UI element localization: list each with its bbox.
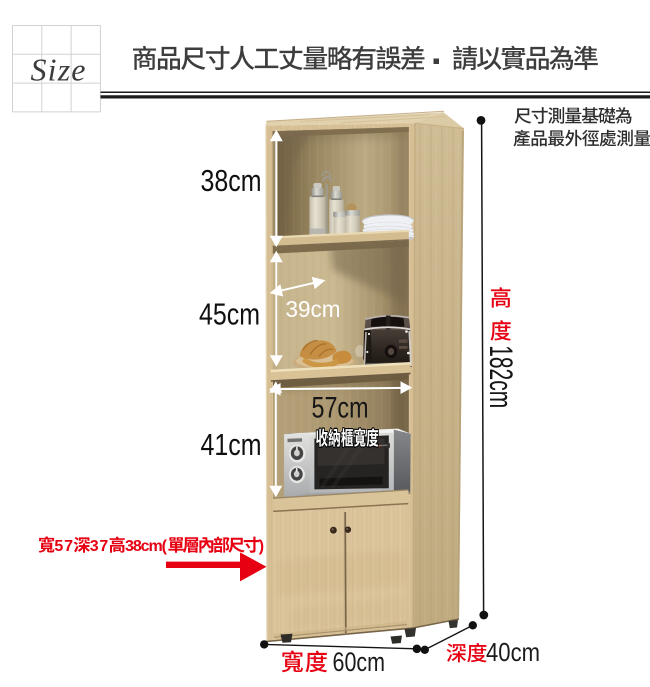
- svg-text:40cm: 40cm: [486, 637, 540, 667]
- svg-text:182cm: 182cm: [483, 345, 519, 408]
- svg-text:37: 37: [90, 538, 109, 555]
- svg-text:): ): [259, 538, 264, 555]
- svg-text:57cm: 57cm: [312, 392, 369, 425]
- svg-text:60cm: 60cm: [333, 647, 386, 677]
- svg-text:57: 57: [54, 538, 73, 555]
- svg-text:39cm: 39cm: [286, 296, 341, 322]
- svg-text:Size: Size: [31, 52, 86, 88]
- svg-text:45cm: 45cm: [199, 297, 260, 332]
- svg-text:38cm: 38cm: [201, 163, 262, 198]
- svg-text:41cm: 41cm: [201, 427, 262, 462]
- svg-text:38cm(: 38cm(: [125, 538, 168, 555]
